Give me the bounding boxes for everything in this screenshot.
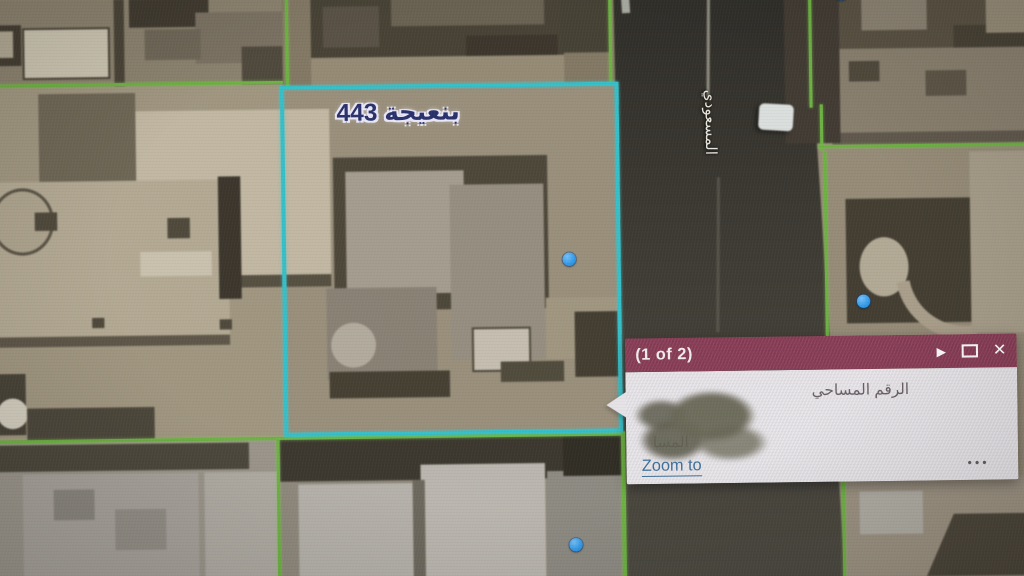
shadow-area — [27, 407, 155, 441]
road-centerline — [706, 0, 710, 98]
popup-header: (1 of 2) ▶ ✕ — [625, 333, 1017, 372]
rooftop-detail — [54, 489, 95, 520]
zoom-to-link[interactable]: Zoom to — [642, 457, 702, 477]
map-stage: بنعيجة 443 المسعودي (1 of 2) ▶ ✕ الرقم ا… — [0, 0, 1024, 576]
maximize-icon[interactable] — [961, 344, 977, 357]
next-feature-icon[interactable]: ▶ — [936, 345, 946, 357]
parcel-boundary-line — [820, 104, 824, 150]
rooftop-detail — [115, 509, 167, 550]
rooftop-detail — [925, 70, 966, 96]
car — [758, 103, 794, 131]
shadow-area — [0, 442, 249, 472]
building-shape — [861, 0, 927, 30]
attribute-label-survey-number: الرقم المساحي — [812, 380, 910, 400]
rooftop-detail — [220, 319, 232, 329]
shadow-area — [563, 434, 623, 476]
shadow-area — [413, 480, 427, 576]
building-shape — [22, 27, 110, 80]
building-shape — [298, 483, 420, 576]
building-shape — [420, 463, 546, 576]
building-shape — [859, 491, 923, 535]
shadow-area — [218, 176, 242, 299]
shadow-area — [113, 0, 124, 86]
screen-photo-tilt: بنعيجة 443 المسعودي (1 of 2) ▶ ✕ الرقم ا… — [0, 0, 1024, 576]
close-icon[interactable]: ✕ — [993, 342, 1007, 358]
popup-body: الرقم المساحي المسا Zoom to ••• — [625, 367, 1018, 484]
building-shape — [0, 31, 13, 58]
building-shape — [985, 0, 1024, 33]
rooftop-detail — [35, 212, 58, 231]
building-shape — [323, 6, 380, 48]
popup-pagination: (1 of 2) — [635, 345, 693, 364]
building-shape — [204, 472, 279, 576]
building-shape — [391, 0, 544, 26]
rooftop-detail — [849, 61, 880, 82]
building-shape — [560, 0, 610, 53]
popup-header-buttons: ▶ ✕ — [936, 342, 1006, 359]
ground-area — [969, 151, 1024, 333]
shadow-area — [466, 34, 558, 56]
selected-parcel[interactable] — [280, 82, 623, 437]
popup-callout-arrow — [606, 392, 627, 419]
rooftop-detail — [92, 318, 104, 328]
feature-popup: (1 of 2) ▶ ✕ الرقم المساحي المسا Zoom to… — [625, 333, 1019, 484]
rooftop-detail — [140, 251, 212, 276]
map-application-window: بنعيجة 443 المسعودي (1 of 2) ▶ ✕ الرقم ا… — [0, 0, 1024, 576]
building-shape — [23, 473, 200, 576]
building-shape — [144, 29, 200, 60]
shadow-area — [242, 46, 283, 84]
street-name-label: المسعودي — [701, 89, 720, 155]
road-marking — [621, 0, 630, 13]
rooftop-detail — [167, 218, 190, 239]
more-options-icon[interactable]: ••• — [968, 455, 990, 470]
parcel-number-label: بنعيجة 443 — [286, 97, 460, 129]
building-shape — [547, 470, 624, 576]
